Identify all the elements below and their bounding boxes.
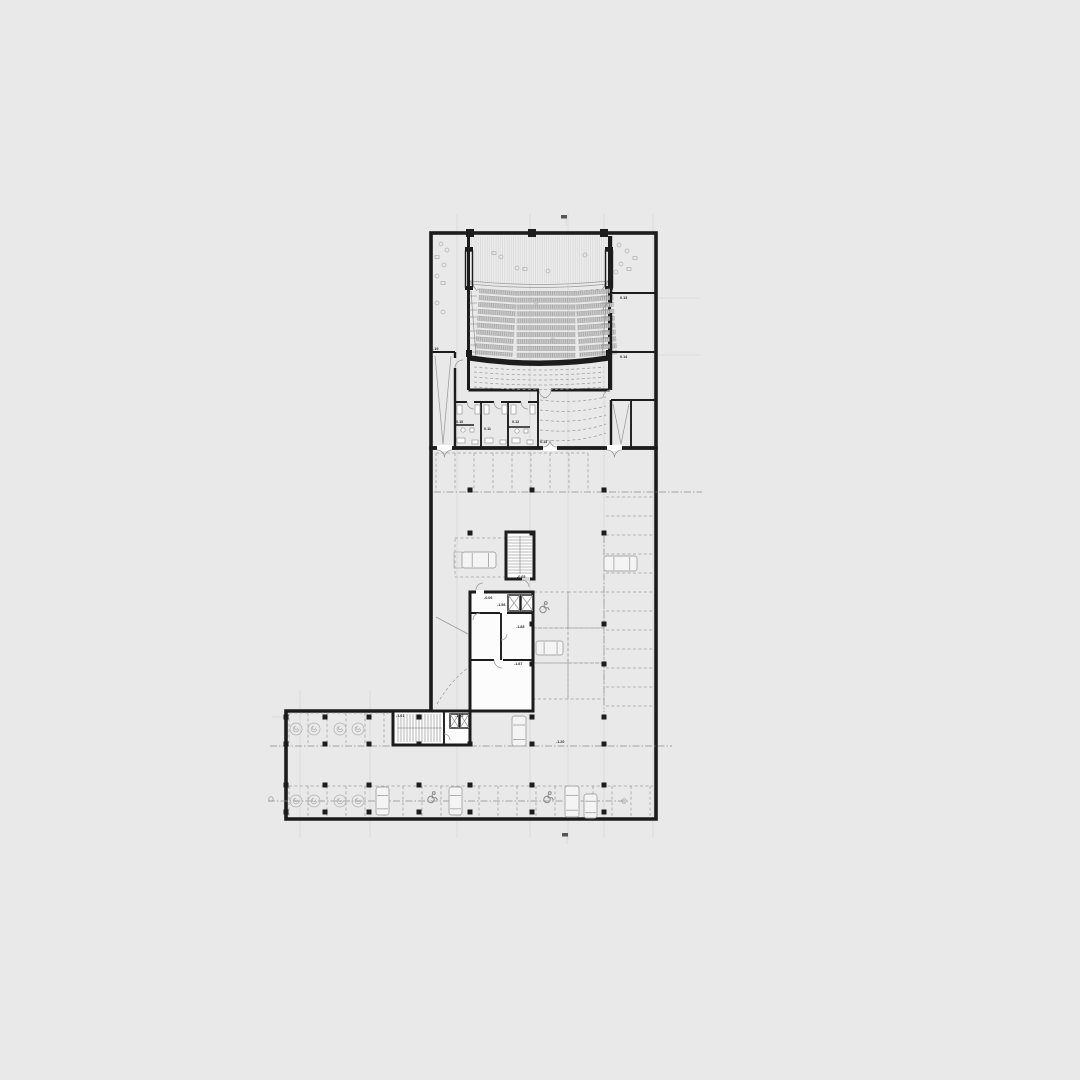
column [367, 742, 372, 747]
column [530, 783, 535, 788]
column [284, 715, 289, 720]
moto-parking-icon [334, 723, 346, 735]
theatre-block [431, 229, 656, 458]
furniture-glyph [627, 267, 631, 270]
column [468, 742, 473, 747]
column [468, 488, 473, 493]
room-label: 0.13 [540, 440, 547, 444]
moto-parking-icon [308, 723, 320, 735]
room-label: 0.12 [512, 420, 519, 424]
floor-plan-page: -1.190.130.140.100.110.120.13-0.05-0.06-… [0, 0, 1080, 1080]
furniture-glyph [435, 255, 439, 258]
seating-left [475, 288, 518, 356]
room-label: -1.88 [516, 625, 524, 629]
column [417, 810, 422, 815]
column [530, 742, 535, 747]
wheelchair-icon [540, 602, 550, 613]
column [323, 783, 328, 788]
column [602, 488, 607, 493]
under-balcony-room [469, 362, 610, 398]
section-mark [562, 833, 568, 837]
seating-center [517, 291, 576, 358]
room-label: 0.13 [620, 296, 627, 300]
furniture-glyph [614, 270, 618, 274]
left-ramp-corridor [431, 352, 463, 448]
column [468, 531, 473, 536]
ramp-symbol [613, 404, 629, 444]
column [367, 810, 372, 815]
room-label: -1.01 [396, 714, 404, 718]
ramp-symbol [435, 356, 451, 444]
column [323, 742, 328, 747]
stall-bay [568, 592, 604, 628]
door-arc [522, 580, 529, 587]
stall-bay [534, 663, 568, 699]
car [536, 641, 563, 655]
furniture-glyph [619, 262, 623, 266]
car [449, 787, 462, 815]
stall-bay [534, 592, 568, 628]
balcony-projection-arcs [540, 397, 606, 441]
column [417, 742, 422, 747]
column [417, 715, 422, 720]
column [530, 488, 535, 493]
column [530, 715, 535, 720]
column [468, 783, 473, 788]
column [530, 622, 535, 627]
room-label: -1.87 [514, 662, 522, 666]
furniture-glyph [441, 310, 445, 314]
floor-plan-drawing: -1.190.130.140.100.110.120.13-0.05-0.06-… [0, 0, 1080, 1080]
stage-area [470, 236, 608, 283]
ramp-edge-line [436, 617, 468, 634]
stall-bay [568, 628, 604, 663]
column [602, 662, 607, 667]
furniture-glyph [445, 248, 449, 252]
furniture-glyph [441, 281, 445, 284]
column [602, 742, 607, 747]
room-label: -1.19 [430, 347, 438, 351]
loading-platform [454, 552, 462, 568]
axis-tick [269, 797, 273, 801]
section-mark [561, 215, 567, 219]
furniture-glyph [633, 256, 637, 259]
room-label: -1.58 [497, 603, 505, 607]
dressing-rooms [455, 390, 538, 448]
car [604, 556, 637, 571]
column [367, 715, 372, 720]
room-label: 0.14 [620, 355, 628, 359]
column [602, 622, 607, 627]
furniture-glyph [435, 274, 439, 278]
car [462, 552, 496, 568]
car [512, 716, 526, 746]
column [468, 810, 473, 815]
furniture-glyph [442, 263, 446, 267]
furniture-glyph [625, 249, 629, 253]
parking-garage [268, 448, 702, 819]
furniture-glyph [435, 301, 439, 305]
door-arc [539, 390, 551, 398]
furniture-glyph [617, 243, 621, 247]
column [417, 783, 422, 788]
right-rooms [603, 236, 656, 448]
stall-bay [568, 663, 604, 699]
room-label: -0.05 [517, 575, 525, 579]
column [530, 810, 535, 815]
door-arc [476, 583, 483, 590]
furniture-glyph [439, 242, 443, 246]
room-label: -1.20 [556, 740, 564, 744]
column [323, 810, 328, 815]
column [602, 783, 607, 788]
column [284, 783, 289, 788]
column [284, 810, 289, 815]
room-label: -1.02 [455, 714, 463, 718]
car [376, 787, 389, 815]
column [602, 715, 607, 720]
door-opening [476, 590, 484, 594]
room-label: -0.06 [484, 596, 492, 600]
column [323, 715, 328, 720]
room-label: 0.10 [456, 420, 463, 424]
car [565, 786, 579, 817]
room-label: 0.11 [484, 427, 491, 431]
column [602, 810, 607, 815]
seating-sections [469, 288, 617, 358]
door-arc [455, 360, 463, 368]
moto-parking-icon [352, 723, 364, 735]
column [602, 531, 607, 536]
column [367, 783, 372, 788]
column [530, 662, 535, 667]
column [284, 742, 289, 747]
car [584, 794, 597, 818]
column [530, 531, 535, 536]
